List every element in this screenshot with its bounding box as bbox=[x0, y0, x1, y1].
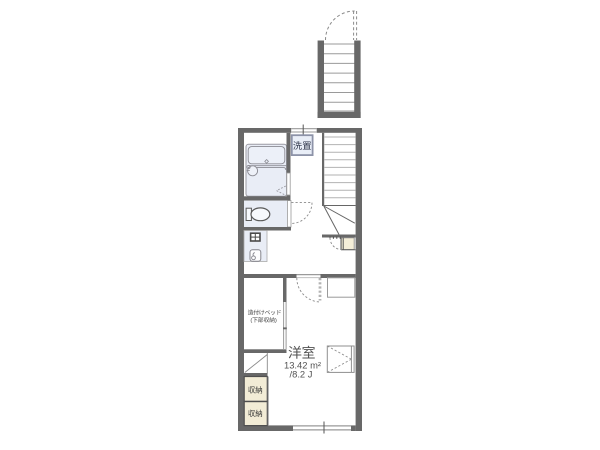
svg-text:洗置: 洗置 bbox=[293, 140, 312, 151]
svg-text:/8.2 J: /8.2 J bbox=[290, 368, 313, 379]
svg-text:(下部収納): (下部収納) bbox=[250, 316, 277, 324]
svg-text:造付けベッド: 造付けベッド bbox=[248, 308, 282, 316]
svg-text:洋室: 洋室 bbox=[288, 344, 316, 360]
svg-text:収納: 収納 bbox=[248, 409, 263, 418]
svg-text:収納: 収納 bbox=[248, 385, 263, 394]
